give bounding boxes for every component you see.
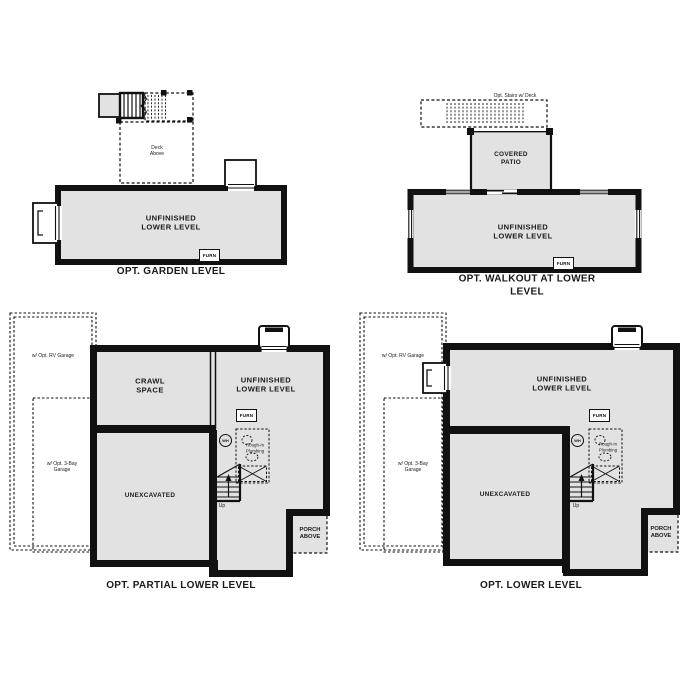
garden-plan-geometry [33,90,284,262]
walkout-room-label: UNFINISHED LOWER LEVEL [493,223,552,242]
crawl-space-label: CRAWL SPACE [135,377,165,396]
partial-furnace-label: FURN [236,409,257,422]
walkout-plan-title: OPT. WALKOUT AT LOWER LEVEL [447,274,607,299]
lower-chimney [612,326,642,350]
partial-water-heater-label: WH [219,434,232,447]
unexcavated-label: UNEXCAVATED [125,492,176,500]
rv-garage-outline [360,313,446,550]
rv-garage-label: w/ Opt. RV Garage [382,353,424,359]
top-window-well [225,160,256,191]
partial-plan-title: OPT. PARTIAL LOWER LEVEL [106,580,256,593]
floor-plan-drawing [0,0,687,687]
bay-garage-outline [384,398,443,552]
bay-garage-outline [33,398,92,552]
garden-plan-title: OPT. GARDEN LEVEL [117,266,225,279]
lower-furnace-label: FURN [589,409,610,422]
partial-room-label: UNFINISHED LOWER LEVEL [236,376,295,395]
partial-chimney [259,326,289,352]
left-window-well [33,203,62,243]
covered-patio-label: COVERED PATIO [494,151,528,167]
bay-garage-label: w/ Opt. 3-Bay Garage [47,461,77,474]
left-window-well [423,363,451,393]
partial-plumbing-label: Rough-In Plumbing [246,443,264,454]
lower-porch-label: PORCH ABOVE [651,526,672,540]
lower-up-label: Up [573,503,579,509]
opt-stairs-deck-label: Opt. Stairs w/ Deck [494,93,537,99]
deck-stairs-icon [99,92,147,119]
lower-plan-title: OPT. LOWER LEVEL [480,580,582,593]
unexcavated-label: UNEXCAVATED [480,491,531,499]
rv-garage-label: w/ Opt. RV Garage [32,353,74,359]
walkout-furnace-label: FURN [553,257,574,270]
garden-room-label: UNFINISHED LOWER LEVEL [141,214,200,233]
lower-plumbing-label: Rough-In Plumbing [599,442,617,453]
opt-stairs-deck-outline [421,100,547,127]
lower-room-label: UNFINISHED LOWER LEVEL [532,375,591,394]
floor-plan-sheet: Deck Above UNFINISHED LOWER LEVEL FURN O… [0,0,687,687]
partial-up-label: Up [219,503,225,509]
patio-sliding-door [487,189,517,194]
garden-furnace-label: FURN [199,249,220,262]
walkout-plan-geometry [407,100,641,270]
deck-above-label: Deck Above [150,145,164,158]
partial-porch-label: PORCH ABOVE [300,527,321,541]
bay-garage-label: w/ Opt. 3-Bay Garage [398,461,428,474]
lower-water-heater-label: WH [571,434,584,447]
rv-garage-outline [10,313,96,550]
